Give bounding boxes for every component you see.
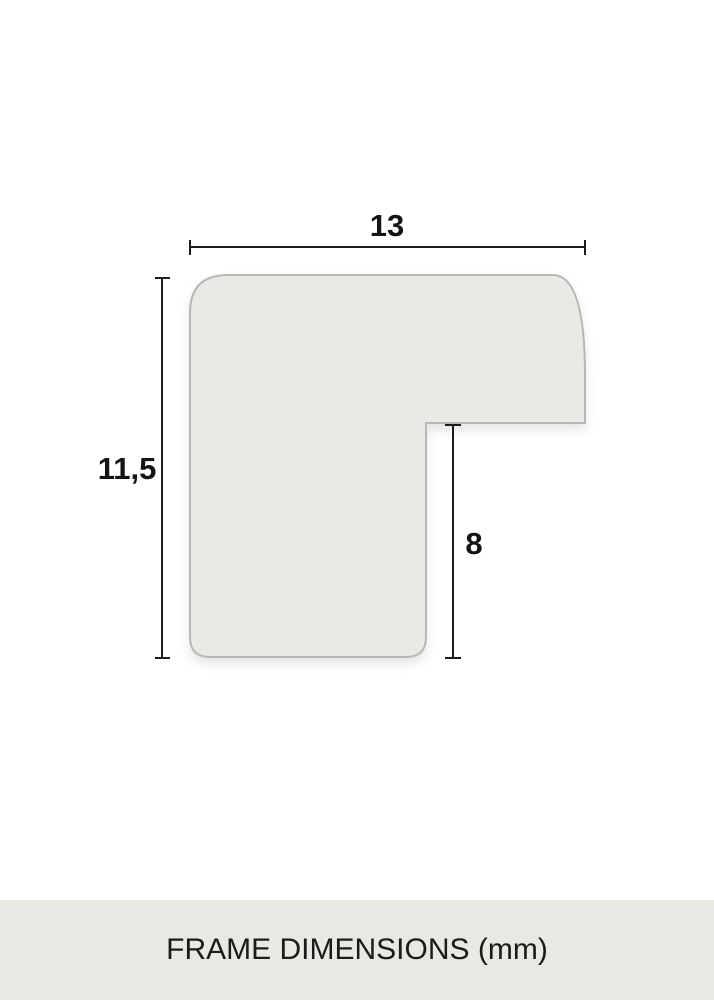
width-dimension: 13 [190, 208, 585, 255]
frame-profile-diagram: 13 11,5 8 [0, 0, 714, 900]
footer-label: FRAME DIMENSIONS (mm) [166, 933, 548, 967]
frame-dimensions-page: 13 11,5 8 FRAME DIMENSIONS (mm) [0, 0, 714, 1000]
height-dimension: 11,5 [98, 278, 170, 658]
frame-profile-shape [190, 275, 585, 657]
footer-bar: FRAME DIMENSIONS (mm) [0, 900, 714, 1000]
rabbet-depth-dimension-label: 8 [465, 526, 482, 561]
width-dimension-label: 13 [370, 208, 404, 243]
rabbet-depth-dimension: 8 [445, 425, 483, 658]
height-dimension-label: 11,5 [98, 451, 157, 486]
